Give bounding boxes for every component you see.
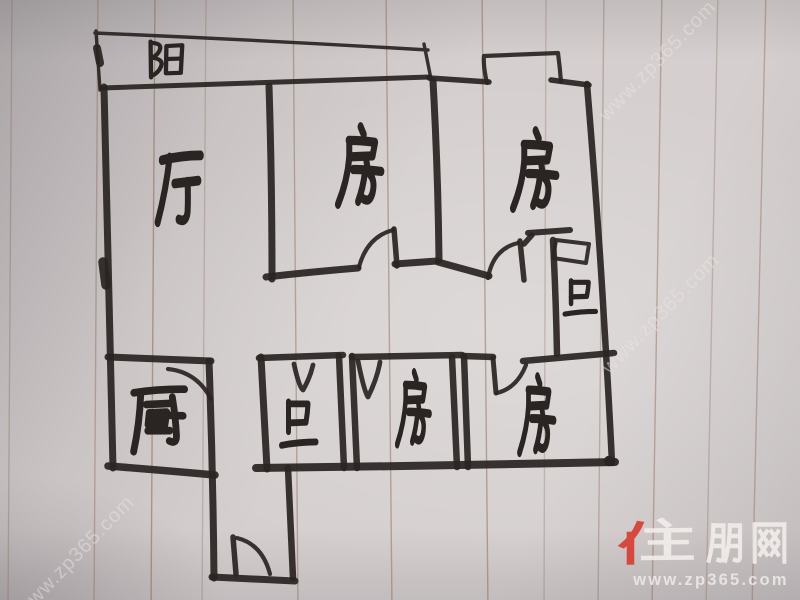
door-leaf-entry <box>233 537 236 574</box>
diagonal-watermark-3: www.zp365.com <box>12 491 139 600</box>
floorplan-sketch: www.zp365.comwww.zp365.comwww.zp365.com … <box>0 0 800 600</box>
zp365-logo <box>623 521 784 563</box>
wall-bathroom-right-top <box>528 230 570 233</box>
diagonal-watermark-1: www.zp365.com <box>594 0 721 126</box>
wall-corner-dot <box>604 456 614 466</box>
wall-outer-left-blob <box>103 262 106 285</box>
wall-divider-bed-bed <box>452 356 468 467</box>
wall-kitchen-top <box>108 357 211 361</box>
wall-divider-bedrooms <box>433 81 439 260</box>
wall-top-right-section <box>429 78 589 85</box>
room-label-kitchen <box>128 388 189 452</box>
balcony-left-cap <box>97 48 100 63</box>
logo-char-1 <box>623 521 690 563</box>
door-arc-entry <box>237 538 270 574</box>
wall-jog-bedroom-right <box>524 235 532 244</box>
wall-bedroom-right-bottom <box>438 262 489 276</box>
zp365-logo-url: www.zp365.com <box>632 571 788 589</box>
diagonal-watermark-2: www.zp365.com <box>597 249 724 379</box>
door-leaf-bedroom-br <box>493 358 496 393</box>
wall-bathroom-bottom-left <box>261 357 267 469</box>
wall-bathroom-bottom-top <box>259 355 343 358</box>
door-leaf-bathroom-right <box>553 240 589 263</box>
wall-corridor-right <box>288 468 293 578</box>
logo-char-2 <box>709 526 740 561</box>
room-label-bedroom-bottom-right <box>520 377 555 453</box>
door-mark-bedroom-bm <box>358 361 380 397</box>
wall-bottom-row <box>256 462 615 468</box>
wall-kitchen-corridor <box>209 361 214 578</box>
room-label-bathroom-bottom <box>282 402 317 446</box>
wall-bathroom-right-left <box>553 240 557 354</box>
wall-bedroom-bm-top <box>352 355 462 357</box>
wall-bedroom-br-top <box>463 353 614 361</box>
room-labels <box>128 42 595 453</box>
room-label-bedroom-top-middle <box>338 127 381 205</box>
floorplan-walls <box>95 31 615 581</box>
floorplan-photo: www.zp365.comwww.zp365.comwww.zp365.com … <box>0 0 800 600</box>
room-label-living-room <box>158 155 201 222</box>
wall-divider-living-bedroom <box>269 86 272 279</box>
door-arc-bedroom-br <box>497 365 526 393</box>
logo-char-3 <box>755 525 785 562</box>
room-label-bathroom-right <box>565 281 596 314</box>
door-arc-bedroom-right <box>488 243 518 278</box>
wall-divider-bath-bed <box>339 356 357 468</box>
door-leaf-bedroom-mid <box>394 229 397 266</box>
room-label-bedroom-bottom-middle <box>397 372 429 444</box>
wall-corridor-bottom <box>212 577 295 581</box>
wall-kitchen-bottom <box>108 466 215 475</box>
door-leaf-bedroom-right <box>520 241 524 280</box>
wall-bedroom-mid-bottom <box>266 261 437 277</box>
room-label-bedroom-top-right <box>513 131 556 209</box>
diagonal-watermarks: www.zp365.comwww.zp365.comwww.zp365.com <box>12 0 724 600</box>
